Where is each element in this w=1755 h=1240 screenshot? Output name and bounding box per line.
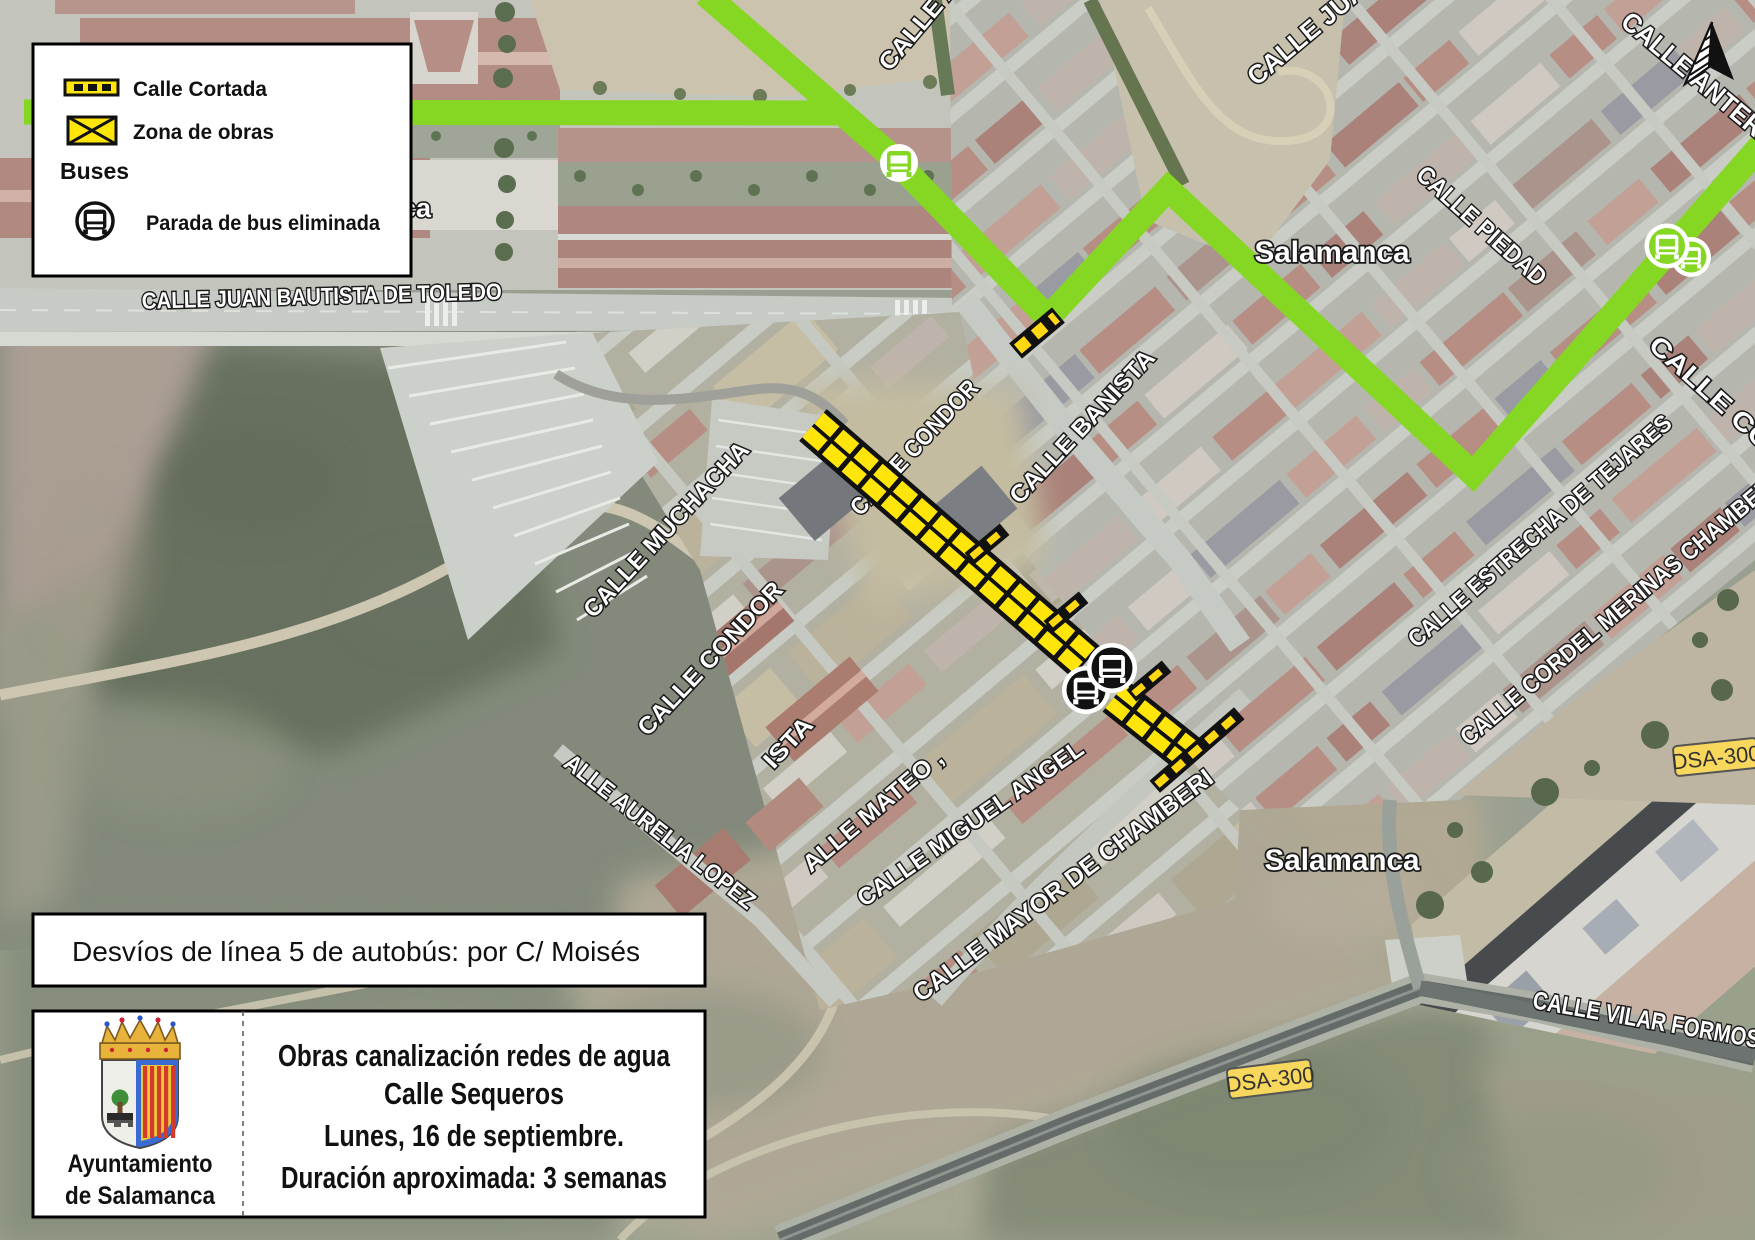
svg-text:Ayuntamiento: Ayuntamiento <box>68 1150 213 1178</box>
svg-text:Obras canalización redes de ag: Obras canalización redes de agua <box>278 1038 671 1073</box>
svg-text:Parada de bus eliminada: Parada de bus eliminada <box>146 212 380 235</box>
svg-text:Salamanca: Salamanca <box>1265 844 1420 877</box>
svg-text:Buses: Buses <box>60 158 129 184</box>
svg-text:Calle Sequeros: Calle Sequeros <box>384 1076 564 1111</box>
svg-text:Salamanca: Salamanca <box>1255 236 1410 269</box>
svg-text:Desvíos de línea 5 de autobús:: Desvíos de línea 5 de autobús: por C/ Mo… <box>72 936 640 967</box>
svg-text:Duración aproximada: 3 semanas: Duración aproximada: 3 semanas <box>281 1160 667 1195</box>
svg-text:Calle Cortada: Calle Cortada <box>133 78 267 101</box>
svg-text:Lunes, 16 de septiembre.: Lunes, 16 de septiembre. <box>324 1118 624 1153</box>
svg-text:de Salamanca: de Salamanca <box>65 1182 216 1210</box>
svg-text:Zona de obras: Zona de obras <box>133 121 274 144</box>
